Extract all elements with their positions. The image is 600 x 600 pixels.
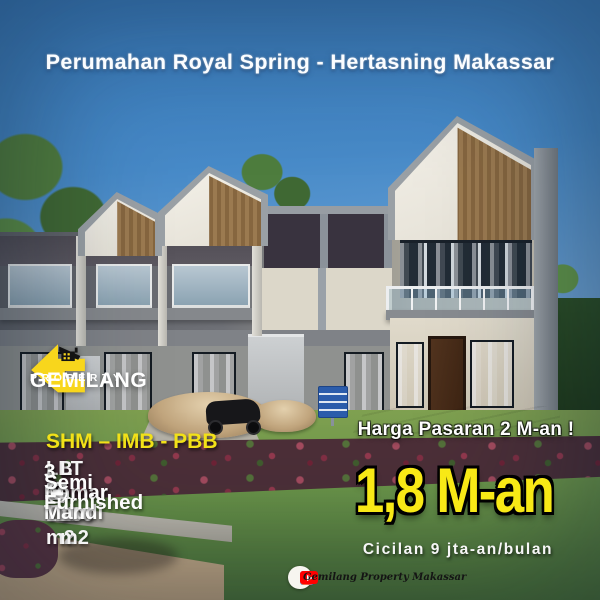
front-door bbox=[428, 336, 466, 416]
yard-sign-leg bbox=[331, 418, 334, 426]
window bbox=[344, 352, 384, 414]
price-headline: 1,8 M-an bbox=[335, 455, 574, 527]
balcony-glass bbox=[172, 264, 250, 308]
installment-text: Cicilan 9 jta-an/bulan bbox=[330, 541, 586, 559]
property-ad-poster: Perumahan Royal Spring - Hertasning Maka… bbox=[0, 0, 600, 600]
balcony-glass bbox=[8, 264, 72, 308]
hedge-fence-right bbox=[556, 298, 600, 420]
pillar bbox=[252, 236, 262, 336]
logo-tagline: PROPERTY bbox=[30, 373, 125, 384]
window bbox=[396, 342, 424, 408]
upper-window-band bbox=[264, 214, 392, 268]
canopy bbox=[0, 308, 264, 320]
sand-pile bbox=[252, 400, 316, 432]
market-price-text: Harga Pasaran 2 M-an ! bbox=[340, 419, 592, 441]
motorcycle-wheel bbox=[246, 420, 261, 435]
yard-sign bbox=[318, 386, 348, 418]
side-wall-fin bbox=[534, 148, 558, 420]
poster-title: Perumahan Royal Spring - Hertasning Maka… bbox=[0, 50, 600, 75]
cream-wall bbox=[262, 268, 392, 332]
balcony-glass bbox=[96, 264, 152, 308]
window bbox=[470, 340, 514, 408]
pillar bbox=[318, 268, 326, 332]
social-account-name: Gemilang Property Makassar bbox=[303, 572, 466, 583]
social-footer: f Gemilang Property Makassar bbox=[288, 566, 312, 589]
legal-status-text: SHM – IMB - PBB bbox=[46, 430, 218, 454]
feature-label: Semi Furnished bbox=[44, 473, 143, 514]
